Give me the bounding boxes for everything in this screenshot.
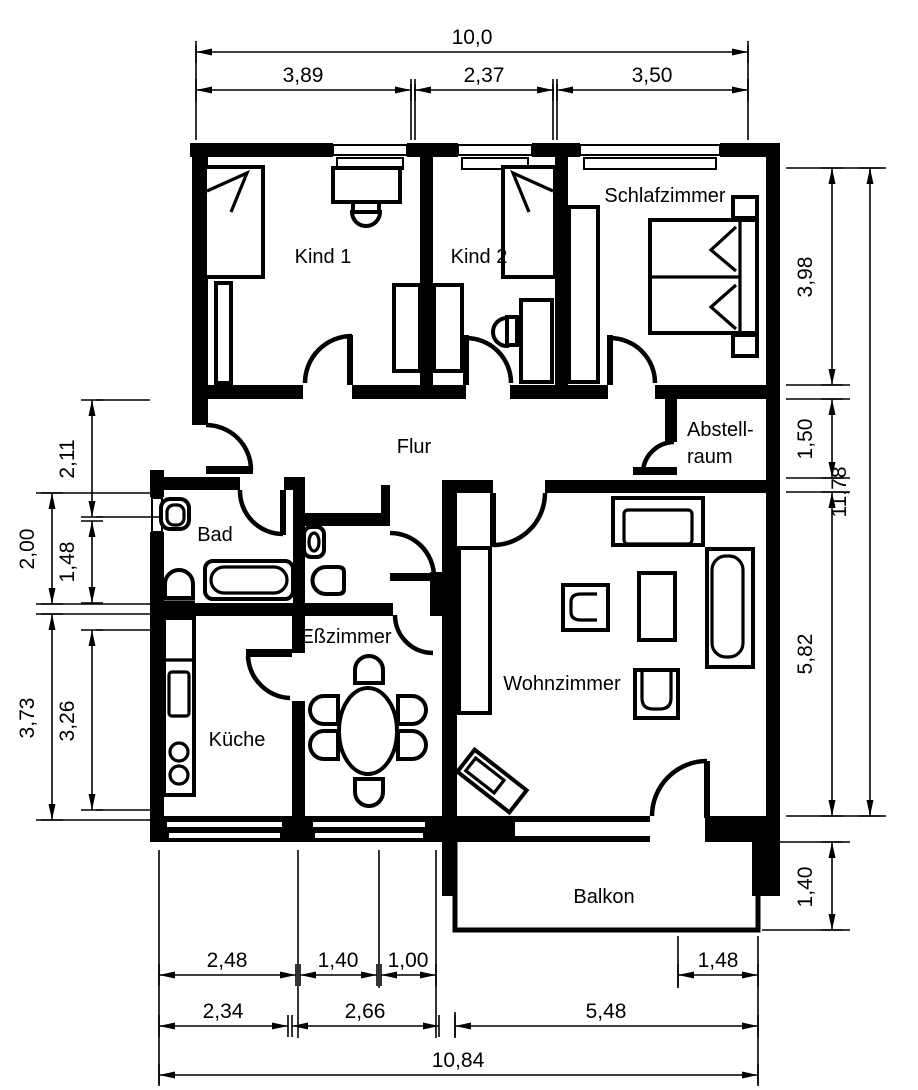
dimension-label-bottom-b2: 2,66 xyxy=(345,1000,386,1023)
dimension-label-width-total: 10,0 xyxy=(452,26,493,49)
room-label-bad: Bad xyxy=(197,524,233,546)
dimension-label-bottom-a3: 1,00 xyxy=(388,949,429,972)
toilet-wc xyxy=(313,567,345,594)
door-leaf-kueche xyxy=(246,649,292,657)
wall-abstell-left xyxy=(665,399,677,442)
wall-top-3 xyxy=(532,143,580,157)
dining-table xyxy=(339,688,397,774)
room-label-kind1: Kind 1 xyxy=(295,246,352,268)
dimension-label-height-flur: 1,50 xyxy=(794,419,817,460)
door-balkon-gap xyxy=(650,816,705,842)
chair-kind2 xyxy=(493,317,517,346)
window-kind1 xyxy=(333,145,407,155)
wall-kueche-top xyxy=(164,603,393,616)
door-leaf-wohnzimmer xyxy=(490,493,496,547)
dimension-label-bottom-b1: 2,34 xyxy=(203,1000,244,1023)
desk-kind2 xyxy=(521,300,552,382)
wall-hall-4 xyxy=(655,385,766,399)
dimension-width-kind1: 3,89 xyxy=(196,64,411,101)
sink-bad xyxy=(163,570,195,602)
door-arc-wohnzimmer xyxy=(493,493,545,545)
dimension-bottom-total: 10,84 xyxy=(159,1049,758,1086)
shelf-wohnzimmer xyxy=(459,548,490,713)
dimension-label-bottom-total: 10,84 xyxy=(432,1049,485,1072)
dimension-bottom-b2: 2,66 xyxy=(292,1000,439,1037)
dimension-height-balkon: 1,40 xyxy=(794,842,843,930)
floorplan-svg: 10,03,892,373,503,981,505,821,4011,782,1… xyxy=(0,0,918,1090)
dimension-label-bottom-a2: 1,40 xyxy=(318,949,359,972)
wall-bottom-left xyxy=(150,816,457,842)
chair-kind1 xyxy=(352,202,380,226)
bed-kind1 xyxy=(205,167,263,383)
window-kueche-b xyxy=(169,833,280,838)
dimension-bottom-a3: 1,00 xyxy=(381,949,436,986)
dimension-label-left-flur: 2,11 xyxy=(56,439,79,478)
room-label2-abstellraum: raum xyxy=(687,446,733,468)
dimension-label-height-total: 11,78 xyxy=(828,467,851,518)
tv-unit xyxy=(457,750,526,813)
dimension-label-width-schlaf: 3,50 xyxy=(632,64,673,87)
dimension-label-left-kueche: 3,26 xyxy=(56,701,79,742)
dimension-label-width-kind2: 2,37 xyxy=(464,64,505,87)
dimension-left-kueche: 3,26 xyxy=(56,630,103,810)
dimension-label-bottom-a1: 2,48 xyxy=(207,949,248,972)
door-leaf-balkon xyxy=(704,761,710,818)
wall-wc-post xyxy=(381,485,390,526)
window-kueche-a xyxy=(167,822,282,827)
dimension-bottom-b1: 2,34 xyxy=(159,1000,288,1037)
armchair-1 xyxy=(563,585,608,630)
armchair-2 xyxy=(635,670,678,718)
dimension-left-bad: 1,48 xyxy=(56,521,103,603)
bed-kind2 xyxy=(503,167,555,277)
dimension-bottom-a2: 1,40 xyxy=(300,949,377,986)
room-label-kueche: Küche xyxy=(209,729,266,751)
window-ess-a xyxy=(313,822,425,827)
wall-top-1 xyxy=(190,143,333,157)
dimension-label-left-bad: 1,48 xyxy=(56,542,79,583)
window-wohn xyxy=(515,822,650,836)
door-arc-bad xyxy=(240,490,283,534)
dimension-height-flur: 1,50 xyxy=(794,399,843,478)
desk-kind1 xyxy=(333,168,400,202)
wall-hall-3 xyxy=(510,385,608,399)
window-schlaf xyxy=(580,145,720,155)
door-arc-entry xyxy=(206,425,251,470)
room-label-kind2: Kind 2 xyxy=(451,246,508,268)
bed-schlafzimmer xyxy=(650,197,757,356)
wall-top-2 xyxy=(407,143,458,157)
bathtub-bad xyxy=(205,561,293,599)
dimension-label-width-kind1: 3,89 xyxy=(283,64,324,87)
wall-wohn-top-2 xyxy=(545,480,766,493)
wall-wc-top xyxy=(293,513,390,526)
dimension-height-schlaf: 3,98 xyxy=(794,168,843,385)
wall-bad-top-1 xyxy=(150,477,240,490)
wardrobe-schlafzimmer xyxy=(569,207,598,382)
nightstand-2 xyxy=(733,335,757,356)
dimension-height-wohnz: 5,82 xyxy=(794,492,843,816)
door-arc-wc xyxy=(390,533,434,577)
door-leaf-bad xyxy=(280,490,286,535)
window-ess-b xyxy=(315,833,423,838)
wall-kueche-ess-2 xyxy=(292,701,305,830)
dimension-label-height-balkon: 1,40 xyxy=(794,867,817,908)
door-leaf-kind1 xyxy=(347,335,353,385)
window-kind2 xyxy=(458,145,532,155)
dimension-label-left-kueche-outer: 3,73 xyxy=(16,698,39,739)
dimension-label-bottom-a4: 1,48 xyxy=(698,949,739,972)
room-label-abstellraum: Abstell- xyxy=(687,419,754,441)
door-leaf-entry xyxy=(206,466,253,474)
sofa-wohnzimmer xyxy=(613,498,703,545)
toilet-bad xyxy=(161,499,189,529)
nightstand-1 xyxy=(733,197,757,218)
kitchen-counter xyxy=(164,618,194,795)
wall-right xyxy=(766,143,780,896)
room-label-schlafzimmer: Schlafzimmer xyxy=(604,185,725,207)
dimension-bottom-a4: 1,48 xyxy=(678,949,758,986)
sink-wc xyxy=(304,527,324,557)
dimension-label-bottom-b3: 5,48 xyxy=(586,1000,627,1023)
door-arc-kind1 xyxy=(305,336,352,383)
dimension-bottom-b3: 5,48 xyxy=(455,1000,758,1037)
wall-hall-1 xyxy=(208,385,303,399)
dimension-label-height-schlaf: 3,98 xyxy=(794,257,817,298)
room-label-wohnzimmer: Wohnzimmer xyxy=(503,673,621,695)
dimension-bottom-a1: 2,48 xyxy=(159,949,296,986)
wardrobe-kind1 xyxy=(394,285,420,371)
dimension-left-flur: 2,11 xyxy=(56,400,103,517)
dimension-width-kind2: 2,37 xyxy=(415,64,553,101)
dimension-label-height-wohnz: 5,82 xyxy=(794,634,817,675)
door-arc-schlaf xyxy=(610,338,655,383)
wall-wc-bar xyxy=(390,573,432,581)
door-leaf-schlaf xyxy=(607,335,613,385)
door-arc-balkon xyxy=(652,761,707,816)
door-arc-kueche xyxy=(248,656,290,698)
wall-left-lower-2 xyxy=(150,532,164,830)
dimension-width-total: 10,0 xyxy=(196,26,748,63)
door-leaf-abstell xyxy=(633,467,677,475)
room-label-flur: Flur xyxy=(397,436,432,458)
wall-hall-2 xyxy=(352,385,466,399)
wardrobe-kind2 xyxy=(434,285,462,371)
wall-ess-top-stub xyxy=(433,603,442,616)
room-label-esszimmer: Eßzimmer xyxy=(300,626,391,648)
room-label-balkon: Balkon xyxy=(573,886,634,908)
furniture xyxy=(161,167,758,930)
door-arc-ess xyxy=(395,615,433,653)
dimension-width-schlaf: 3,50 xyxy=(557,64,748,101)
dimension-height-total: 11,78 xyxy=(828,168,881,816)
dimension-label-left-bad-outer: 2,00 xyxy=(16,529,39,570)
couch-wohnzimmer xyxy=(707,549,753,667)
coffee-table xyxy=(639,573,675,640)
window-schlaf-sill xyxy=(584,158,716,169)
door-arc-abstell xyxy=(643,442,674,470)
